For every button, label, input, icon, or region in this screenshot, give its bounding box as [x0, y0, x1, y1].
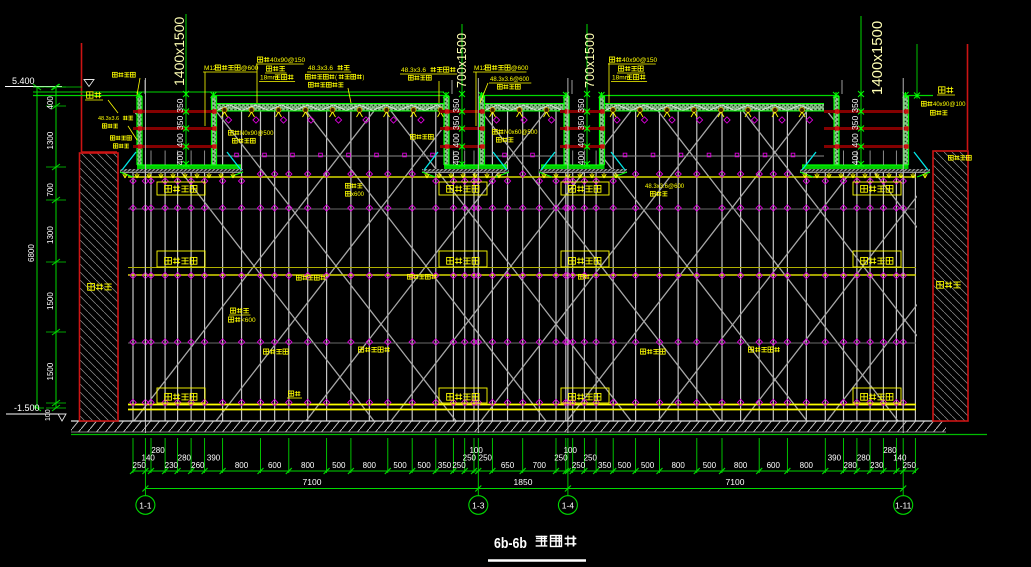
- svg-text:350: 350: [576, 116, 586, 130]
- svg-text:230: 230: [870, 461, 884, 470]
- svg-text:1850: 1850: [514, 477, 533, 487]
- svg-text:40x90@150: 40x90@150: [622, 57, 658, 64]
- svg-text:x600: x600: [351, 192, 365, 198]
- svg-text:1-3: 1-3: [472, 501, 485, 511]
- svg-text:800: 800: [671, 461, 685, 470]
- svg-text:280: 280: [151, 446, 165, 455]
- svg-text:700: 700: [46, 183, 55, 197]
- svg-text:350: 350: [576, 98, 586, 112]
- svg-text:40x90@150: 40x90@150: [270, 57, 306, 64]
- svg-text:6800: 6800: [27, 244, 36, 262]
- svg-text:800: 800: [800, 461, 814, 470]
- svg-text:400: 400: [175, 151, 185, 165]
- svg-text:260: 260: [191, 461, 205, 470]
- svg-text:800: 800: [301, 461, 315, 470]
- svg-text:350: 350: [598, 461, 612, 470]
- svg-text:250: 250: [479, 454, 493, 463]
- svg-text:800: 800: [734, 461, 748, 470]
- svg-text:230: 230: [165, 461, 179, 470]
- svg-text:1400x1500: 1400x1500: [869, 21, 886, 95]
- svg-text:700x1500: 700x1500: [455, 33, 469, 88]
- svg-text:1-11: 1-11: [895, 501, 912, 511]
- svg-text:40x90@100: 40x90@100: [933, 102, 966, 108]
- svg-text:@600: @600: [511, 65, 529, 72]
- svg-text:5.400: 5.400: [12, 76, 35, 86]
- svg-text:48.3x3.6: 48.3x3.6: [401, 67, 426, 74]
- svg-text:400: 400: [451, 133, 461, 147]
- svg-text:7100: 7100: [303, 477, 322, 487]
- svg-text:800: 800: [363, 461, 377, 470]
- svg-text:250: 250: [903, 461, 917, 470]
- svg-text:500: 500: [417, 461, 431, 470]
- svg-text:280: 280: [178, 454, 192, 463]
- svg-text:390: 390: [207, 454, 221, 463]
- svg-text:1400x1500: 1400x1500: [171, 16, 187, 86]
- svg-text:650: 650: [501, 461, 515, 470]
- svg-text:48.3x3.6@600: 48.3x3.6@600: [645, 184, 685, 190]
- svg-text:N0x90@500: N0x90@500: [240, 131, 274, 137]
- svg-text:350: 350: [451, 116, 461, 130]
- svg-text:800: 800: [235, 461, 249, 470]
- svg-text:280: 280: [844, 461, 858, 470]
- svg-text:(: (: [335, 75, 337, 81]
- svg-text:): ): [362, 75, 364, 81]
- svg-text:1500: 1500: [46, 362, 55, 380]
- svg-text:48.3x3.6@600: 48.3x3.6@600: [490, 77, 530, 83]
- svg-text:7100: 7100: [726, 477, 745, 487]
- svg-text:350: 350: [175, 98, 185, 112]
- svg-text:18mm: 18mm: [260, 75, 278, 82]
- svg-text:400: 400: [576, 133, 586, 147]
- svg-text:100: 100: [45, 409, 52, 421]
- svg-text:280: 280: [857, 454, 871, 463]
- svg-text:1300: 1300: [46, 226, 55, 244]
- svg-text:390: 390: [828, 454, 842, 463]
- svg-text:500: 500: [703, 461, 717, 470]
- svg-text:48.3x3.6: 48.3x3.6: [308, 65, 333, 72]
- svg-text:500: 500: [641, 461, 655, 470]
- svg-text:400: 400: [451, 151, 461, 165]
- svg-text:350: 350: [175, 116, 185, 130]
- svg-text:350: 350: [451, 98, 461, 112]
- svg-text:400: 400: [850, 133, 860, 147]
- svg-text:350: 350: [850, 98, 860, 112]
- svg-text:350: 350: [850, 116, 860, 130]
- svg-text:@600: @600: [241, 65, 259, 72]
- svg-text:600: 600: [767, 461, 781, 470]
- svg-text:1-4: 1-4: [562, 501, 575, 511]
- svg-text:700: 700: [533, 461, 547, 470]
- svg-text:48.3x3.6: 48.3x3.6: [98, 116, 119, 122]
- svg-text:1500: 1500: [46, 292, 55, 310]
- svg-text:-1.500: -1.500: [14, 403, 40, 413]
- svg-text:1300: 1300: [46, 131, 55, 149]
- svg-text:400: 400: [850, 151, 860, 165]
- svg-text:400: 400: [46, 96, 55, 110]
- svg-text:400: 400: [576, 151, 586, 165]
- svg-text:500: 500: [618, 461, 632, 470]
- svg-text:500: 500: [332, 461, 346, 470]
- svg-text:1-1: 1-1: [139, 501, 152, 511]
- svg-text:<600: <600: [241, 317, 256, 324]
- svg-text:700x1500: 700x1500: [583, 33, 597, 88]
- svg-text:600: 600: [268, 461, 282, 470]
- svg-text:350: 350: [438, 461, 452, 470]
- svg-text:400: 400: [175, 133, 185, 147]
- svg-text:250: 250: [584, 454, 598, 463]
- svg-text:N0x60@500: N0x60@500: [504, 130, 538, 136]
- svg-text:18mm: 18mm: [612, 75, 630, 82]
- svg-text:6b-6b: 6b-6b: [494, 535, 527, 552]
- svg-text:500: 500: [393, 461, 407, 470]
- svg-text:100: 100: [564, 446, 578, 455]
